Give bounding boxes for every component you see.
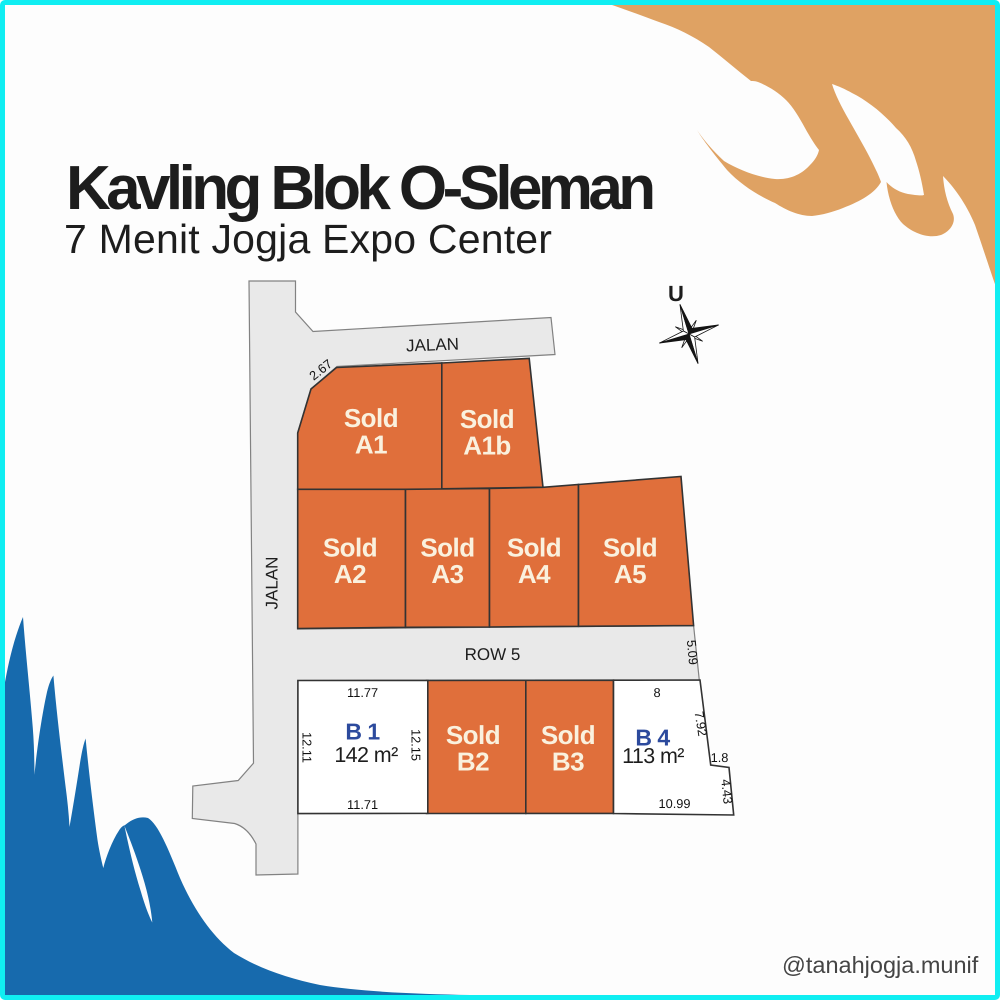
svg-text:B2: B2 <box>457 747 489 777</box>
svg-text:11.71: 11.71 <box>347 797 378 812</box>
svg-text:4.43: 4.43 <box>718 778 736 804</box>
svg-text:Sold: Sold <box>446 720 500 750</box>
svg-text:Sold: Sold <box>460 404 514 434</box>
svg-text:JALAN: JALAN <box>263 557 282 610</box>
svg-text:B 1: B 1 <box>345 719 380 745</box>
svg-text:Sold: Sold <box>603 533 657 563</box>
svg-text:113 m²: 113 m² <box>622 744 684 768</box>
svg-text:8: 8 <box>653 685 660 700</box>
svg-text:12.11: 12.11 <box>300 732 315 763</box>
svg-text:U: U <box>668 281 684 306</box>
svg-text:Sold: Sold <box>507 533 561 563</box>
svg-text:Sold: Sold <box>541 720 595 750</box>
svg-text:Sold: Sold <box>323 533 377 563</box>
svg-text:A3: A3 <box>431 559 463 589</box>
svg-text:A1b: A1b <box>463 431 511 461</box>
svg-text:11.77: 11.77 <box>347 685 378 700</box>
svg-text:A4: A4 <box>518 559 551 589</box>
svg-text:A2: A2 <box>334 559 366 589</box>
svg-text:142 m²: 142 m² <box>334 743 398 767</box>
svg-text:5.09: 5.09 <box>684 639 701 665</box>
svg-text:ROW 5: ROW 5 <box>465 645 521 664</box>
svg-text:A5: A5 <box>614 559 646 589</box>
svg-text:10.99: 10.99 <box>658 796 690 811</box>
svg-text:JALAN: JALAN <box>406 334 460 355</box>
svg-text:Sold: Sold <box>344 403 398 433</box>
svg-text:Sold: Sold <box>420 533 474 563</box>
svg-text:1.8: 1.8 <box>711 750 729 765</box>
svg-text:12.15: 12.15 <box>409 729 424 761</box>
svg-text:A1: A1 <box>355 430 387 460</box>
svg-text:B3: B3 <box>552 747 584 777</box>
